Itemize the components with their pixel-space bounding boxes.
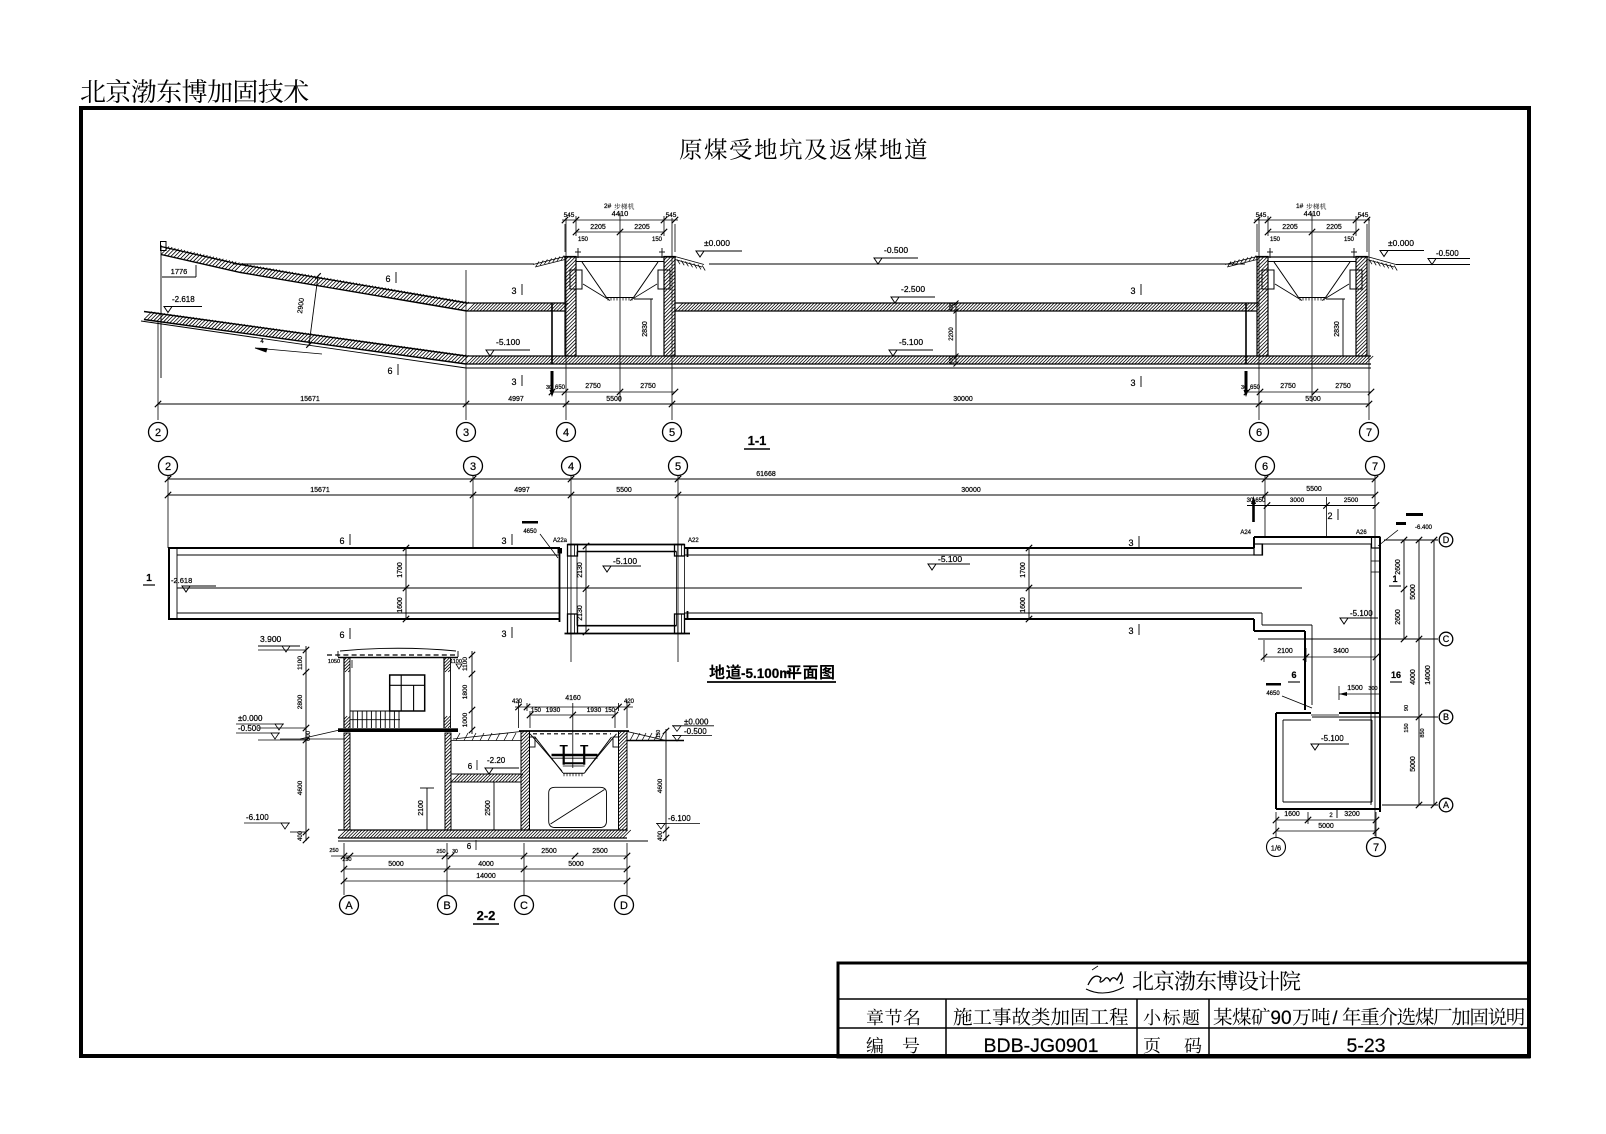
- svg-text:5500: 5500: [1305, 396, 1321, 403]
- svg-text:16: 16: [1391, 670, 1401, 680]
- svg-text:1: 1: [146, 573, 152, 584]
- svg-text:150: 150: [656, 730, 662, 739]
- svg-text:2500: 2500: [1344, 497, 1359, 504]
- svg-text:2500: 2500: [541, 848, 557, 855]
- svg-text:3: 3: [511, 286, 516, 296]
- svg-text:5000: 5000: [1410, 584, 1417, 600]
- svg-text:1050: 1050: [328, 659, 340, 665]
- svg-text:5000: 5000: [568, 861, 584, 868]
- svg-text:4650: 4650: [523, 529, 537, 535]
- svg-text:5-23: 5-23: [1346, 1035, 1385, 1057]
- svg-text:2750: 2750: [640, 383, 656, 390]
- svg-text:-5.100: -5.100: [1350, 609, 1373, 618]
- svg-text:250: 250: [329, 848, 338, 854]
- svg-text:150: 150: [1404, 723, 1410, 732]
- svg-text:400: 400: [949, 356, 955, 365]
- svg-text:-0.500: -0.500: [1436, 249, 1459, 258]
- svg-text:6: 6: [467, 842, 472, 851]
- svg-text:150: 150: [531, 708, 542, 714]
- svg-text:/: /: [1332, 1008, 1337, 1028]
- svg-text:4410: 4410: [1304, 209, 1321, 218]
- svg-text:5: 5: [675, 461, 681, 473]
- svg-text:250: 250: [436, 849, 445, 855]
- svg-text:2830: 2830: [642, 321, 649, 337]
- svg-text:-5.100: -5.100: [1321, 734, 1344, 743]
- svg-text:545: 545: [564, 212, 575, 219]
- svg-text:1600: 1600: [1020, 597, 1027, 613]
- svg-text:3000: 3000: [1290, 497, 1305, 504]
- svg-text:4650: 4650: [1266, 691, 1280, 697]
- svg-text:650: 650: [555, 385, 566, 391]
- svg-text:545: 545: [1358, 212, 1369, 219]
- svg-text:420: 420: [624, 699, 635, 705]
- svg-text:14000: 14000: [476, 873, 496, 880]
- svg-text:-5.100: -5.100: [613, 556, 637, 566]
- svg-text:150: 150: [605, 708, 616, 714]
- svg-text:2500: 2500: [592, 848, 608, 855]
- svg-text:4: 4: [568, 461, 574, 473]
- svg-text:2750: 2750: [1335, 383, 1351, 390]
- svg-text:A: A: [345, 900, 353, 912]
- svg-text:3200: 3200: [1344, 811, 1360, 818]
- svg-text:2830: 2830: [1334, 321, 1341, 337]
- svg-text:C: C: [1443, 634, 1450, 644]
- svg-text:2: 2: [155, 427, 161, 439]
- svg-text:6: 6: [468, 762, 473, 771]
- svg-text:30: 30: [452, 849, 458, 855]
- svg-text:3400: 3400: [1333, 648, 1349, 655]
- svg-text:-6.100: -6.100: [246, 813, 269, 822]
- svg-text:600: 600: [306, 730, 312, 741]
- svg-text:14000: 14000: [1425, 665, 1432, 685]
- svg-text:-6.100: -6.100: [668, 814, 691, 823]
- svg-text:2205: 2205: [1282, 224, 1298, 231]
- svg-text:150: 150: [578, 237, 589, 243]
- svg-text:7: 7: [1366, 427, 1372, 439]
- svg-text:15671: 15671: [310, 487, 330, 494]
- svg-text:30: 30: [1241, 385, 1247, 391]
- svg-text:6: 6: [1291, 670, 1296, 680]
- svg-text:5500: 5500: [616, 487, 632, 494]
- svg-text:1000: 1000: [462, 712, 469, 727]
- svg-text:A26: A26: [1356, 530, 1367, 536]
- svg-text:30000: 30000: [953, 396, 973, 403]
- svg-text:5: 5: [669, 427, 675, 439]
- svg-text:7: 7: [1372, 461, 1378, 473]
- svg-text:±0.000: ±0.000: [684, 718, 709, 727]
- svg-text:D: D: [620, 900, 628, 912]
- svg-text:5000: 5000: [1410, 756, 1417, 772]
- svg-text:2205: 2205: [634, 224, 650, 231]
- svg-text:-5.100: -5.100: [496, 337, 520, 347]
- svg-text:A22a: A22a: [553, 538, 568, 544]
- svg-text:2100: 2100: [1277, 648, 1293, 655]
- svg-text:2200: 2200: [949, 327, 955, 341]
- svg-text:850: 850: [1420, 728, 1426, 737]
- svg-text:2130: 2130: [577, 605, 584, 621]
- svg-text:5500: 5500: [606, 396, 622, 403]
- svg-text:1700: 1700: [1020, 562, 1027, 578]
- svg-text:3: 3: [511, 377, 516, 387]
- svg-text:30000: 30000: [961, 487, 981, 494]
- svg-text:6: 6: [1256, 427, 1262, 439]
- svg-text:3: 3: [501, 629, 506, 639]
- svg-text:B: B: [1443, 712, 1449, 722]
- svg-text:2#: 2#: [604, 203, 612, 210]
- svg-text:90: 90: [1270, 1008, 1291, 1029]
- svg-text:1/6: 1/6: [1271, 844, 1281, 853]
- svg-text:4000: 4000: [1410, 669, 1417, 685]
- svg-text:-0.500: -0.500: [684, 727, 707, 736]
- svg-text:-2.618: -2.618: [172, 295, 195, 304]
- svg-text:4997: 4997: [508, 396, 524, 403]
- svg-text:2600: 2600: [1395, 609, 1402, 625]
- svg-text:3: 3: [463, 427, 469, 439]
- svg-text:3: 3: [1128, 626, 1133, 636]
- svg-text:2600: 2600: [1395, 559, 1402, 575]
- svg-text:400: 400: [658, 830, 664, 841]
- svg-text:30: 30: [546, 385, 552, 391]
- svg-text:2500: 2500: [485, 800, 492, 816]
- svg-text:5000: 5000: [1318, 823, 1334, 830]
- svg-text:1100: 1100: [462, 657, 469, 671]
- svg-text:±0.000: ±0.000: [704, 238, 730, 248]
- svg-text:6: 6: [385, 274, 390, 284]
- svg-text:-5.100: -5.100: [899, 337, 923, 347]
- svg-text:C: C: [520, 900, 528, 912]
- svg-text:±0.000: ±0.000: [238, 714, 263, 723]
- svg-text:6: 6: [339, 536, 344, 546]
- svg-text:150: 150: [1270, 237, 1281, 243]
- svg-text:4: 4: [563, 427, 569, 439]
- svg-text:6: 6: [339, 630, 344, 640]
- svg-text:D: D: [1443, 535, 1450, 545]
- svg-text:1-1: 1-1: [748, 433, 767, 448]
- svg-text:61668: 61668: [756, 471, 776, 478]
- svg-text:6: 6: [1262, 461, 1268, 473]
- svg-text:2800: 2800: [297, 694, 304, 709]
- svg-text:4000: 4000: [478, 861, 494, 868]
- svg-text:2-2: 2-2: [477, 908, 496, 923]
- svg-text:B: B: [443, 900, 450, 912]
- svg-text:BDB-JG0901: BDB-JG0901: [984, 1035, 1099, 1057]
- svg-text:2750: 2750: [1280, 383, 1296, 390]
- svg-text:1: 1: [1392, 574, 1397, 584]
- svg-text:4600: 4600: [297, 780, 304, 795]
- svg-text:150: 150: [1344, 237, 1355, 243]
- svg-text:1700: 1700: [397, 562, 404, 578]
- svg-text:2205: 2205: [1326, 224, 1342, 231]
- svg-text:A22: A22: [688, 538, 699, 544]
- svg-text:5500: 5500: [1306, 486, 1322, 493]
- svg-text:2205: 2205: [590, 224, 606, 231]
- svg-text:1#: 1#: [1296, 203, 1304, 210]
- svg-text:3.900: 3.900: [260, 634, 282, 644]
- svg-text:4410: 4410: [612, 209, 629, 218]
- svg-text:1800: 1800: [462, 684, 469, 699]
- svg-text:-6.400: -6.400: [1415, 525, 1433, 531]
- svg-text:2750: 2750: [585, 383, 601, 390]
- svg-text:2130: 2130: [577, 562, 584, 578]
- svg-text:-2.20: -2.20: [487, 756, 506, 765]
- svg-text:1500: 1500: [1347, 685, 1363, 692]
- svg-text:3: 3: [1130, 286, 1135, 296]
- svg-text:300: 300: [1368, 686, 1377, 692]
- svg-text:30-650: 30-650: [1247, 498, 1266, 504]
- svg-text:7: 7: [1373, 842, 1379, 854]
- svg-text:4160: 4160: [565, 695, 581, 702]
- svg-text:3: 3: [1128, 538, 1133, 548]
- svg-text:1600: 1600: [1284, 811, 1300, 818]
- svg-text:A: A: [1443, 800, 1449, 810]
- svg-text:90: 90: [1404, 705, 1410, 711]
- svg-text:3: 3: [1130, 378, 1135, 388]
- svg-text:-0.500: -0.500: [238, 724, 261, 733]
- svg-text:3: 3: [501, 536, 506, 546]
- svg-text:1600: 1600: [397, 597, 404, 613]
- svg-text:545: 545: [666, 212, 677, 219]
- svg-text:545: 545: [1256, 212, 1267, 219]
- svg-text:-5.100: -5.100: [938, 554, 962, 564]
- svg-text:1930: 1930: [546, 707, 561, 714]
- svg-text:150: 150: [652, 237, 663, 243]
- svg-text:1930: 1930: [587, 707, 602, 714]
- svg-text:-2.500: -2.500: [901, 284, 925, 294]
- svg-text:1100: 1100: [297, 656, 304, 670]
- svg-text:5000: 5000: [388, 861, 404, 868]
- svg-text:1776: 1776: [171, 267, 188, 276]
- svg-text:6: 6: [387, 366, 392, 376]
- svg-text:-2.618: -2.618: [171, 576, 192, 585]
- svg-text:400: 400: [949, 303, 955, 312]
- svg-text:15671: 15671: [300, 396, 320, 403]
- svg-text:3: 3: [470, 461, 476, 473]
- svg-text:±0.000: ±0.000: [1388, 238, 1414, 248]
- svg-text:4997: 4997: [514, 487, 530, 494]
- svg-text:-0.500: -0.500: [884, 245, 908, 255]
- svg-text:2100: 2100: [418, 800, 425, 816]
- svg-text:2: 2: [1327, 511, 1332, 521]
- svg-text:4600: 4600: [657, 778, 664, 793]
- svg-text:A24: A24: [1240, 530, 1251, 536]
- svg-text:-5.100m: -5.100m: [741, 666, 791, 681]
- svg-text:420: 420: [512, 699, 523, 705]
- svg-text:2: 2: [165, 461, 171, 473]
